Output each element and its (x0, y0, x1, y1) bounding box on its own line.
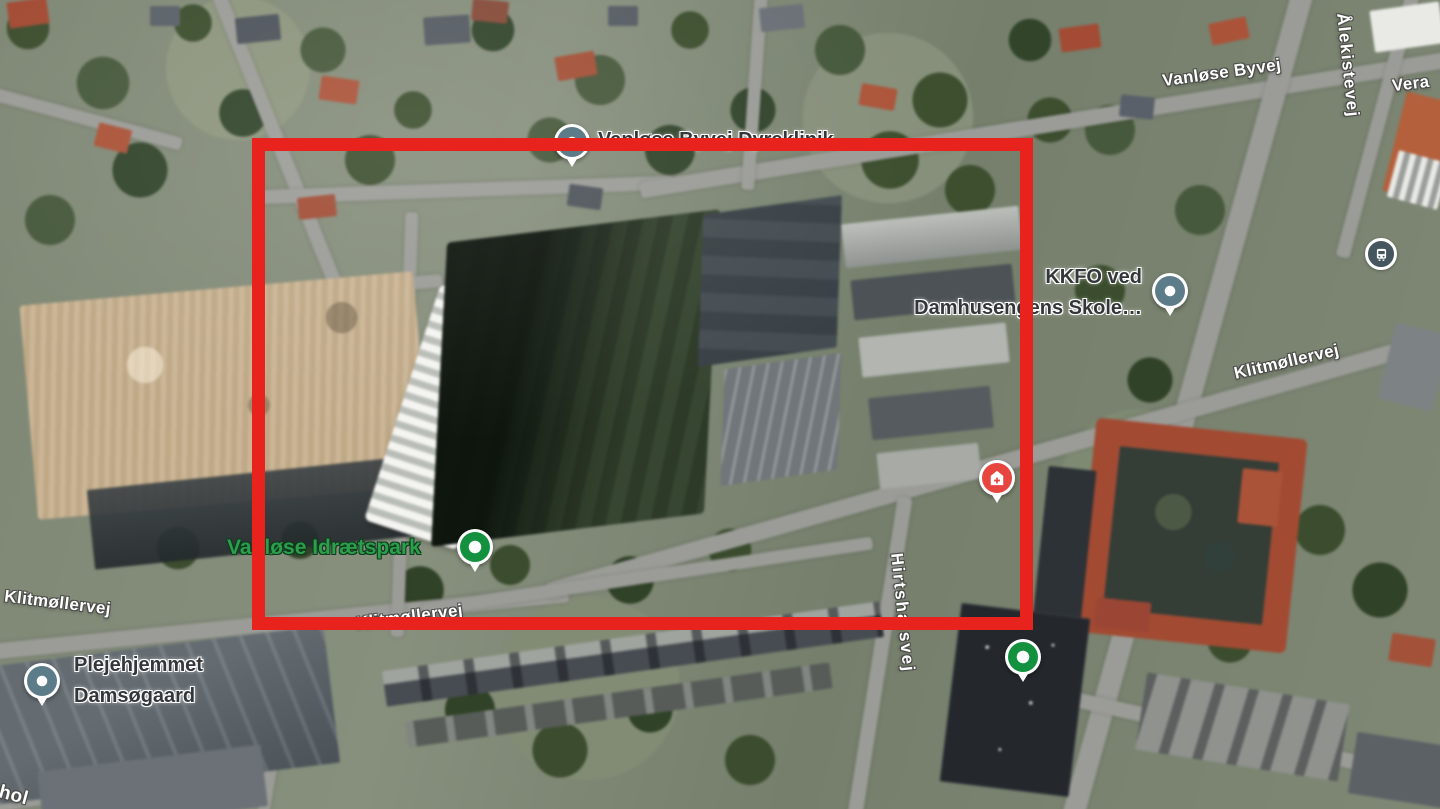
health-pin[interactable] (979, 460, 1015, 496)
poi-pin-dyreklinik[interactable] (554, 124, 590, 160)
dark-flat-roof-building (940, 603, 1091, 798)
poi-label-plejehjemmet[interactable]: Plejehjemmet Damsøgaard (74, 650, 203, 712)
poi-pin-plejehjemmet[interactable] (24, 663, 60, 699)
poi-label-dyreklinik[interactable]: Vanløse Byvej Dyreklinik (598, 125, 834, 156)
poi-label-plejehjemmet-line2: Damsøgaard (74, 681, 203, 712)
medical-house-icon (982, 463, 1012, 493)
aerial-photo-layer (0, 0, 1440, 809)
building-roof (759, 4, 805, 32)
building-roof (608, 6, 638, 26)
building-roof (150, 6, 180, 26)
building-roof (1237, 468, 1283, 527)
poi-pin-icon (27, 666, 57, 696)
poi-pin-icon (557, 127, 587, 157)
bus-stop-icon[interactable] (1365, 238, 1397, 270)
poi-label-kkfo-line2: Damhusengens Skole… (870, 293, 1142, 324)
building-roof (423, 14, 471, 45)
building-roof (235, 14, 281, 44)
park-pin-unlabeled[interactable] (1005, 639, 1041, 675)
poi-label-plejehjemmet-line1: Plejehjemmet (74, 650, 203, 681)
building-roof (1094, 597, 1152, 633)
football-pitch (431, 209, 720, 547)
poi-label-idraetspark[interactable]: Vanløse Idrætspark (227, 532, 421, 563)
poi-pin-icon (1155, 276, 1185, 306)
park-pin-icon (460, 532, 490, 562)
poi-label-kkfo[interactable]: KKFO ved Damhusengens Skole… (870, 262, 1142, 324)
parking-lot (698, 195, 842, 367)
park-pin-idraetspark[interactable] (457, 529, 493, 565)
building-roof (297, 194, 337, 220)
building-block (1369, 1, 1440, 52)
poi-label-kkfo-line1: KKFO ved (870, 262, 1142, 293)
parking-lot (721, 353, 842, 486)
park-pin-icon (1008, 642, 1038, 672)
poi-pin-kkfo[interactable] (1152, 273, 1188, 309)
building-roof (567, 184, 604, 211)
building-roof (1119, 94, 1155, 119)
building-roof (471, 0, 509, 24)
bus-glyph (1373, 246, 1390, 263)
building-roof (319, 75, 360, 104)
satellite-map-canvas[interactable]: Vanløse Byvej Ålekistevej Vera Klitmølle… (0, 0, 1440, 809)
